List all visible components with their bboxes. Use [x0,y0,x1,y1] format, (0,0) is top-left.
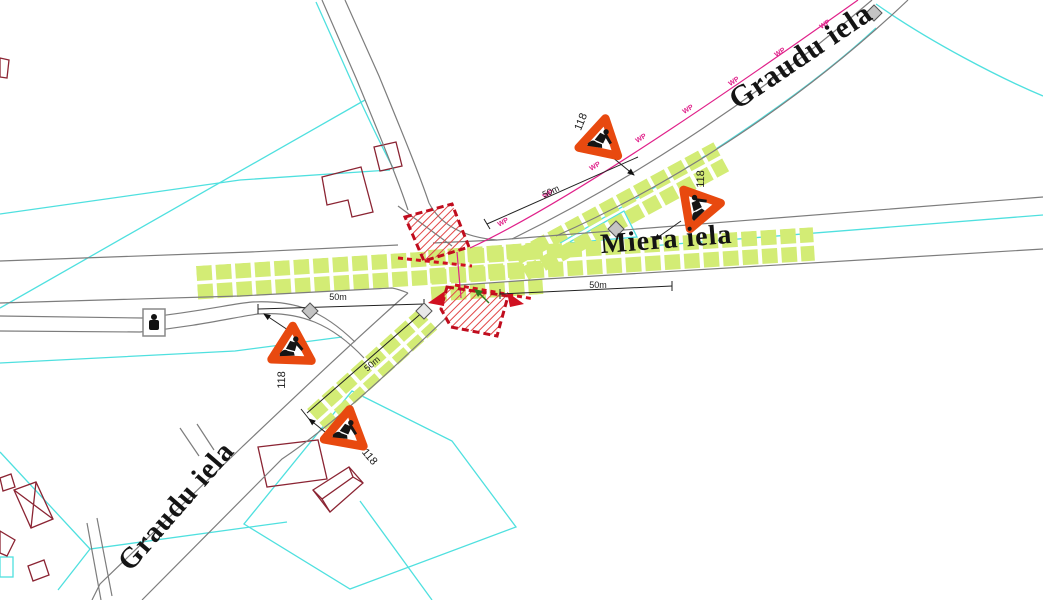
dimension-line [258,304,424,309]
building-outline [0,58,9,78]
parcel-line [0,557,13,577]
parcel-line [360,501,432,600]
building-outline [0,531,15,556]
traffic-plan-map: WP WP WP WP WP WP WP WP 50m 50m 50m 50m [0,0,1043,600]
road-edge [87,518,112,600]
street-name-graudu-ne: Graudu iela [723,0,878,116]
building-outline [0,474,15,491]
traffic-plan-page: WP WP WP WP WP WP WP WP 50m 50m 50m 50m [0,0,1043,600]
sign-code-label: 118 [276,371,288,389]
building-outline [313,467,363,512]
dimension-tick [484,219,490,229]
dimension-label: 50m [329,292,347,302]
buildings [0,58,402,581]
dimension-label: 50m [589,280,607,290]
building-outline [322,167,373,217]
roadworks-sign-icon [272,325,313,360]
building-outline [28,560,49,581]
wp-label: WP [635,133,649,145]
parcel-line [244,391,516,589]
road-edge [322,0,408,210]
sign-code-label: 118 [695,170,707,188]
temporary-markings [196,142,815,430]
parcel-line [0,170,390,214]
street-name-graudu-sw: Graudu iela [112,435,241,577]
small-sign-symbol [143,309,165,336]
small-sign-glyph-icon [149,320,159,330]
sign-post-symbol [302,303,318,319]
sign-code-label: 118 [572,111,590,132]
small-sign-glyph-icon [151,314,157,320]
parcel-line [876,4,1043,96]
parcel-line [58,549,90,590]
sign-leader-arrow [264,314,288,330]
wp-label: WP [589,161,603,173]
